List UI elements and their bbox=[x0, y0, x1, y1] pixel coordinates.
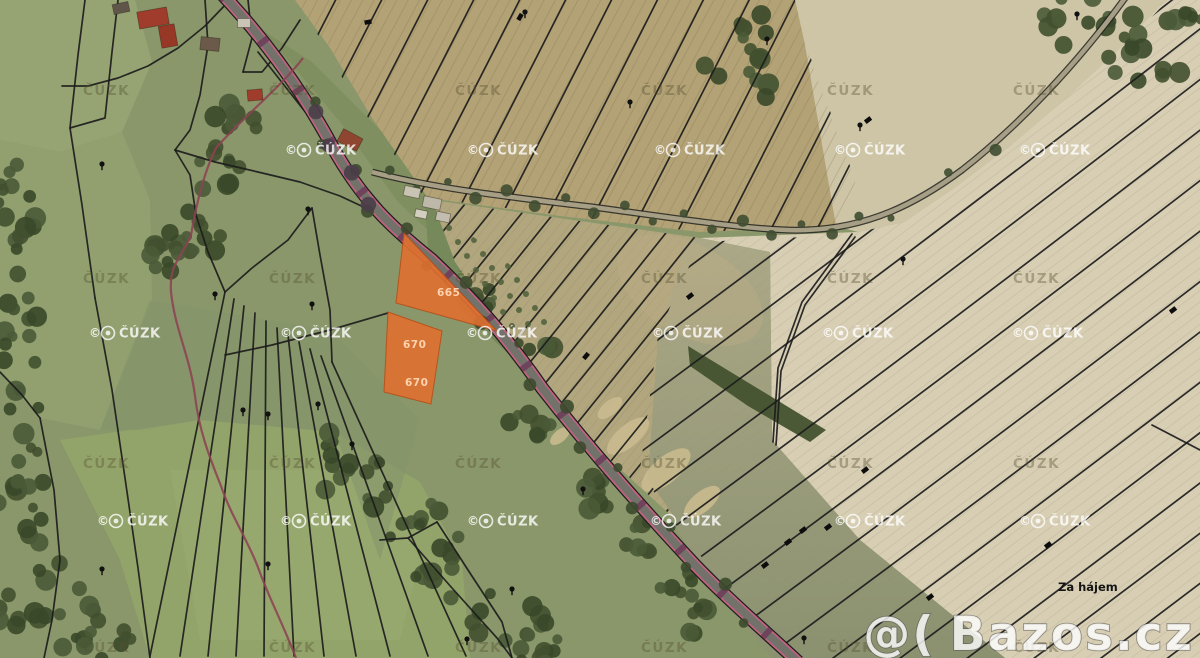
cuzk-logo-dot bbox=[839, 331, 844, 336]
forest-blob bbox=[693, 603, 703, 613]
forest-blob bbox=[72, 581, 87, 596]
forest-blob bbox=[696, 57, 714, 75]
field-name-label: Za hájem bbox=[1058, 580, 1118, 594]
cuzk-watermark-faint: ČÚZK bbox=[269, 638, 316, 656]
forest-blob bbox=[685, 574, 698, 587]
forest-blob bbox=[529, 427, 545, 443]
cuzk-watermark-faint: ČÚZK bbox=[83, 81, 130, 99]
forest-blob bbox=[7, 303, 20, 316]
forest-blob bbox=[28, 503, 38, 513]
forest-blob bbox=[23, 190, 36, 203]
forest-blob bbox=[141, 246, 160, 265]
tree-icon bbox=[469, 192, 482, 205]
tree-icon bbox=[464, 253, 470, 259]
forest-blob bbox=[1122, 6, 1144, 28]
forest-blob bbox=[6, 381, 26, 401]
cuzk-watermark-faint: ČÚZK bbox=[641, 638, 688, 656]
copyright-icon: © bbox=[466, 326, 478, 340]
forest-blob bbox=[85, 626, 97, 638]
tree-icon bbox=[737, 215, 749, 227]
tree-icon bbox=[523, 291, 529, 297]
bazos-watermark: @(Bazos.cz bbox=[863, 607, 1194, 658]
cuzk-watermark: ©ČÚZK bbox=[280, 514, 352, 530]
forest-blob bbox=[26, 442, 36, 452]
cuzk-watermark-faint: ČÚZK bbox=[827, 269, 874, 287]
cuzk-watermark-text: ČÚZK bbox=[496, 326, 538, 342]
cuzk-watermark: ©ČÚZK bbox=[280, 326, 352, 342]
forest-blob bbox=[34, 474, 51, 491]
forest-blob bbox=[34, 512, 49, 527]
cuzk-watermark: ©ČÚZK bbox=[834, 514, 906, 530]
tree-icon bbox=[574, 441, 587, 454]
house-roof bbox=[238, 19, 251, 28]
tree-icon bbox=[707, 224, 717, 234]
cuzk-watermark-faint: ČÚZK bbox=[83, 454, 130, 472]
cuzk-logo-dot bbox=[1036, 519, 1041, 524]
forest-blob bbox=[685, 589, 699, 603]
cuzk-watermark: ©ČÚZK bbox=[654, 143, 726, 159]
cuzk-logo-dot bbox=[302, 148, 307, 153]
tree-icon bbox=[514, 277, 520, 283]
cuzk-watermark-faint: ČÚZK bbox=[641, 454, 688, 472]
forest-blob bbox=[537, 337, 556, 356]
tree-icon bbox=[501, 184, 513, 196]
forest-blob bbox=[1108, 65, 1123, 80]
cuzk-watermark-faint: ČÚZK bbox=[455, 454, 502, 472]
forest-blob bbox=[53, 638, 72, 657]
forest-blob bbox=[1055, 36, 1073, 54]
cuzk-watermark: ©ČÚZK bbox=[467, 143, 539, 159]
cuzk-logo-dot bbox=[1036, 148, 1041, 153]
forest-blob bbox=[54, 608, 66, 620]
forest-blob bbox=[12, 228, 29, 245]
cuzk-logo-dot bbox=[114, 519, 119, 524]
tree-icon bbox=[516, 307, 522, 313]
forest-blob bbox=[655, 582, 667, 594]
cuzk-watermark-faint: ČÚZK bbox=[455, 81, 502, 99]
tree-icon bbox=[385, 165, 395, 175]
tree-icon bbox=[588, 207, 600, 219]
copyright-icon: © bbox=[834, 143, 846, 157]
forest-blob bbox=[225, 117, 239, 131]
tree-icon bbox=[561, 193, 570, 202]
cuzk-watermark: ©ČÚZK bbox=[467, 514, 539, 530]
forest-blob bbox=[519, 405, 538, 424]
forest-blob bbox=[22, 292, 35, 305]
copyright-icon: © bbox=[467, 514, 479, 528]
forest-blob bbox=[629, 538, 647, 556]
copyright-icon: © bbox=[652, 326, 664, 340]
cuzk-logo-dot bbox=[297, 331, 302, 336]
cuzk-watermark: ©ČÚZK bbox=[1019, 143, 1091, 159]
cuzk-logo-dot bbox=[851, 519, 856, 524]
cuzk-watermark: ©ČÚZK bbox=[822, 326, 894, 342]
cuzk-watermark: ©ČÚZK bbox=[466, 326, 538, 342]
bazos-watermark-text: Bazos.cz bbox=[950, 607, 1194, 658]
cuzk-watermark-text: ČÚZK bbox=[852, 326, 894, 342]
tree-icon bbox=[446, 225, 452, 231]
tree-icon bbox=[500, 309, 506, 315]
forest-blob bbox=[214, 229, 227, 242]
forest-blob bbox=[1, 588, 16, 603]
cuzk-watermark-faint: ČÚZK bbox=[83, 269, 130, 287]
cuzk-watermark-text: ČÚZK bbox=[497, 514, 539, 530]
cuzk-watermark-text: ČÚZK bbox=[315, 143, 357, 159]
cuzk-watermark: ©ČÚZK bbox=[650, 514, 722, 530]
cuzk-logo-dot bbox=[484, 148, 489, 153]
copyright-icon: © bbox=[285, 143, 297, 157]
cuzk-watermark-text: ČÚZK bbox=[1049, 143, 1091, 159]
cuzk-watermark: ©ČÚZK bbox=[652, 326, 724, 342]
house-roof bbox=[158, 24, 178, 48]
tree-icon bbox=[529, 200, 541, 212]
tree-icon bbox=[344, 165, 360, 181]
cuzk-watermark: ©ČÚZK bbox=[285, 143, 357, 159]
cadastral-map[interactable]: 665 670 670 ČÚZKČÚZKČÚZKČÚZKČÚZKČÚZKČÚZK… bbox=[0, 0, 1200, 658]
cuzk-watermark-text: ČÚZK bbox=[310, 514, 352, 530]
forest-blob bbox=[13, 423, 34, 444]
cuzk-watermark-text: ČÚZK bbox=[864, 514, 906, 530]
forest-blob bbox=[79, 596, 99, 616]
forest-blob bbox=[576, 478, 596, 498]
cuzk-logo-dot bbox=[1029, 331, 1034, 336]
cuzk-watermark-faint: ČÚZK bbox=[1013, 81, 1060, 99]
tree-icon bbox=[491, 295, 497, 301]
cuzk-logo-dot bbox=[667, 519, 672, 524]
tree-icon bbox=[455, 239, 461, 245]
forest-blob bbox=[757, 88, 775, 106]
parcel-number-670b: 670 bbox=[405, 377, 428, 389]
cuzk-watermark-faint: ČÚZK bbox=[455, 638, 502, 656]
tree-icon bbox=[507, 293, 513, 299]
tree-icon bbox=[798, 220, 806, 228]
cuzk-watermark-text: ČÚZK bbox=[127, 514, 169, 530]
cuzk-watermark-text: ČÚZK bbox=[682, 326, 724, 342]
tree-icon bbox=[989, 144, 1001, 156]
cuzk-watermark: ©ČÚZK bbox=[1019, 514, 1091, 530]
copyright-icon: © bbox=[654, 143, 666, 157]
forest-blob bbox=[751, 5, 771, 25]
tree-icon bbox=[887, 215, 894, 222]
tree-icon bbox=[649, 217, 657, 225]
cuzk-logo-dot bbox=[483, 331, 488, 336]
parcel-number-665: 665 bbox=[437, 287, 460, 299]
tree-icon bbox=[626, 502, 639, 515]
parcel-number-670a: 670 bbox=[403, 339, 426, 351]
tree-icon bbox=[560, 400, 574, 414]
cuzk-watermark-text: ČÚZK bbox=[680, 514, 722, 530]
forest-blob bbox=[33, 564, 46, 577]
forest-blob bbox=[4, 403, 17, 416]
forest-blob bbox=[452, 531, 464, 543]
cuzk-watermark: ©ČÚZK bbox=[89, 326, 161, 342]
tree-icon bbox=[680, 209, 688, 217]
forest-blob bbox=[749, 48, 770, 69]
cuzk-watermark-text: ČÚZK bbox=[310, 326, 352, 342]
cuzk-watermark-faint: ČÚZK bbox=[641, 81, 688, 99]
cuzk-watermark-faint: ČÚZK bbox=[1013, 269, 1060, 287]
cuzk-logo-dot bbox=[297, 519, 302, 524]
forest-blob bbox=[1124, 41, 1139, 56]
cadastral-map-svg: 665 670 670 ČÚZKČÚZKČÚZKČÚZKČÚZKČÚZKČÚZK… bbox=[0, 0, 1200, 658]
tree-icon bbox=[681, 562, 692, 573]
forest-blob bbox=[544, 418, 557, 431]
cuzk-watermark-faint: ČÚZK bbox=[1013, 454, 1060, 472]
forest-blob bbox=[204, 106, 226, 128]
forest-blob bbox=[710, 68, 727, 85]
cuzk-watermark-text: ČÚZK bbox=[1049, 514, 1091, 530]
cuzk-logo-dot bbox=[671, 148, 676, 153]
forest-blob bbox=[363, 496, 384, 517]
forest-blob bbox=[7, 616, 25, 634]
cuzk-watermark-text: ČÚZK bbox=[684, 143, 726, 159]
forest-blob bbox=[27, 307, 47, 327]
cuzk-watermark-faint: ČÚZK bbox=[269, 454, 316, 472]
forest-blob bbox=[28, 356, 41, 369]
cuzk-logo-dot bbox=[106, 331, 111, 336]
forest-blob bbox=[22, 329, 36, 343]
forest-blob bbox=[10, 475, 24, 489]
copyright-icon: © bbox=[97, 514, 109, 528]
forest-blob bbox=[522, 596, 542, 616]
forest-blob bbox=[552, 634, 562, 644]
forest-blob bbox=[1052, 14, 1064, 26]
copyright-icon: © bbox=[1019, 514, 1031, 528]
bazos-logo-icon: @( bbox=[863, 607, 935, 658]
tree-icon bbox=[620, 201, 630, 211]
forest-blob bbox=[11, 454, 26, 469]
tree-icon bbox=[541, 319, 547, 325]
cuzk-watermark-faint: ČÚZK bbox=[641, 269, 688, 287]
copyright-icon: © bbox=[834, 514, 846, 528]
cuzk-watermark-text: ČÚZK bbox=[864, 143, 906, 159]
tree-icon bbox=[613, 463, 622, 472]
copyright-icon: © bbox=[280, 514, 292, 528]
house-roof bbox=[200, 37, 220, 52]
forest-blob bbox=[578, 498, 600, 520]
tree-icon bbox=[944, 168, 953, 177]
forest-blob bbox=[1155, 68, 1170, 83]
cuzk-watermark: ©ČÚZK bbox=[97, 514, 169, 530]
forest-blob bbox=[9, 266, 26, 283]
cuzk-logo-dot bbox=[851, 148, 856, 153]
cuzk-watermark-faint: ČÚZK bbox=[455, 269, 502, 287]
tree-icon bbox=[854, 212, 863, 221]
cuzk-watermark: ©ČÚZK bbox=[834, 143, 906, 159]
cuzk-logo-dot bbox=[484, 519, 489, 524]
forest-blob bbox=[737, 32, 748, 43]
forest-blob bbox=[1169, 62, 1190, 83]
tree-icon bbox=[480, 251, 486, 257]
forest-blob bbox=[24, 602, 46, 624]
copyright-icon: © bbox=[280, 326, 292, 340]
tree-icon bbox=[766, 230, 777, 241]
tree-icon bbox=[739, 618, 749, 628]
copyright-icon: © bbox=[650, 514, 662, 528]
tree-icon bbox=[401, 222, 413, 234]
forest-blob bbox=[17, 519, 36, 538]
forest-blob bbox=[1081, 16, 1095, 30]
forest-blob bbox=[522, 629, 535, 642]
copyright-icon: © bbox=[1019, 143, 1031, 157]
forest-blob bbox=[1178, 6, 1192, 20]
copyright-icon: © bbox=[1012, 326, 1024, 340]
tree-icon bbox=[532, 305, 538, 311]
forest-blob bbox=[743, 66, 755, 78]
forest-blob bbox=[245, 110, 262, 127]
forest-blob bbox=[680, 623, 699, 642]
forest-blob bbox=[540, 645, 550, 655]
forest-blob bbox=[630, 523, 641, 534]
cuzk-watermark-faint: ČÚZK bbox=[269, 269, 316, 287]
forest-blob bbox=[217, 174, 238, 195]
cuzk-logo-dot bbox=[669, 331, 674, 336]
cuzk-watermark-faint: ČÚZK bbox=[827, 454, 874, 472]
cuzk-watermark-text: ČÚZK bbox=[1042, 326, 1084, 342]
forest-blob bbox=[410, 571, 421, 582]
cuzk-watermark-faint: ČÚZK bbox=[269, 81, 316, 99]
forest-blob bbox=[10, 158, 24, 172]
tree-icon bbox=[524, 378, 537, 391]
cuzk-watermark-faint: ČÚZK bbox=[83, 638, 130, 656]
tree-icon bbox=[826, 228, 838, 240]
cuzk-watermark-text: ČÚZK bbox=[119, 326, 161, 342]
tree-icon bbox=[308, 104, 323, 119]
tree-icon bbox=[444, 178, 452, 186]
forest-blob bbox=[444, 560, 459, 575]
cuzk-watermark-faint: ČÚZK bbox=[827, 81, 874, 99]
forest-blob bbox=[117, 623, 132, 638]
forest-blob bbox=[156, 238, 169, 251]
tree-icon bbox=[719, 578, 732, 591]
cuzk-watermark-text: ČÚZK bbox=[497, 143, 539, 159]
forest-blob bbox=[1101, 50, 1116, 65]
forest-blob bbox=[537, 614, 554, 631]
forest-blob bbox=[189, 245, 199, 255]
cuzk-watermark: ©ČÚZK bbox=[1012, 326, 1084, 342]
tree-icon bbox=[361, 197, 377, 213]
copyright-icon: © bbox=[822, 326, 834, 340]
forest-blob bbox=[425, 498, 437, 510]
house-roof bbox=[247, 89, 263, 101]
copyright-icon: © bbox=[89, 326, 101, 340]
copyright-icon: © bbox=[467, 143, 479, 157]
forest-blob bbox=[667, 583, 678, 594]
forest-blob bbox=[11, 243, 23, 255]
